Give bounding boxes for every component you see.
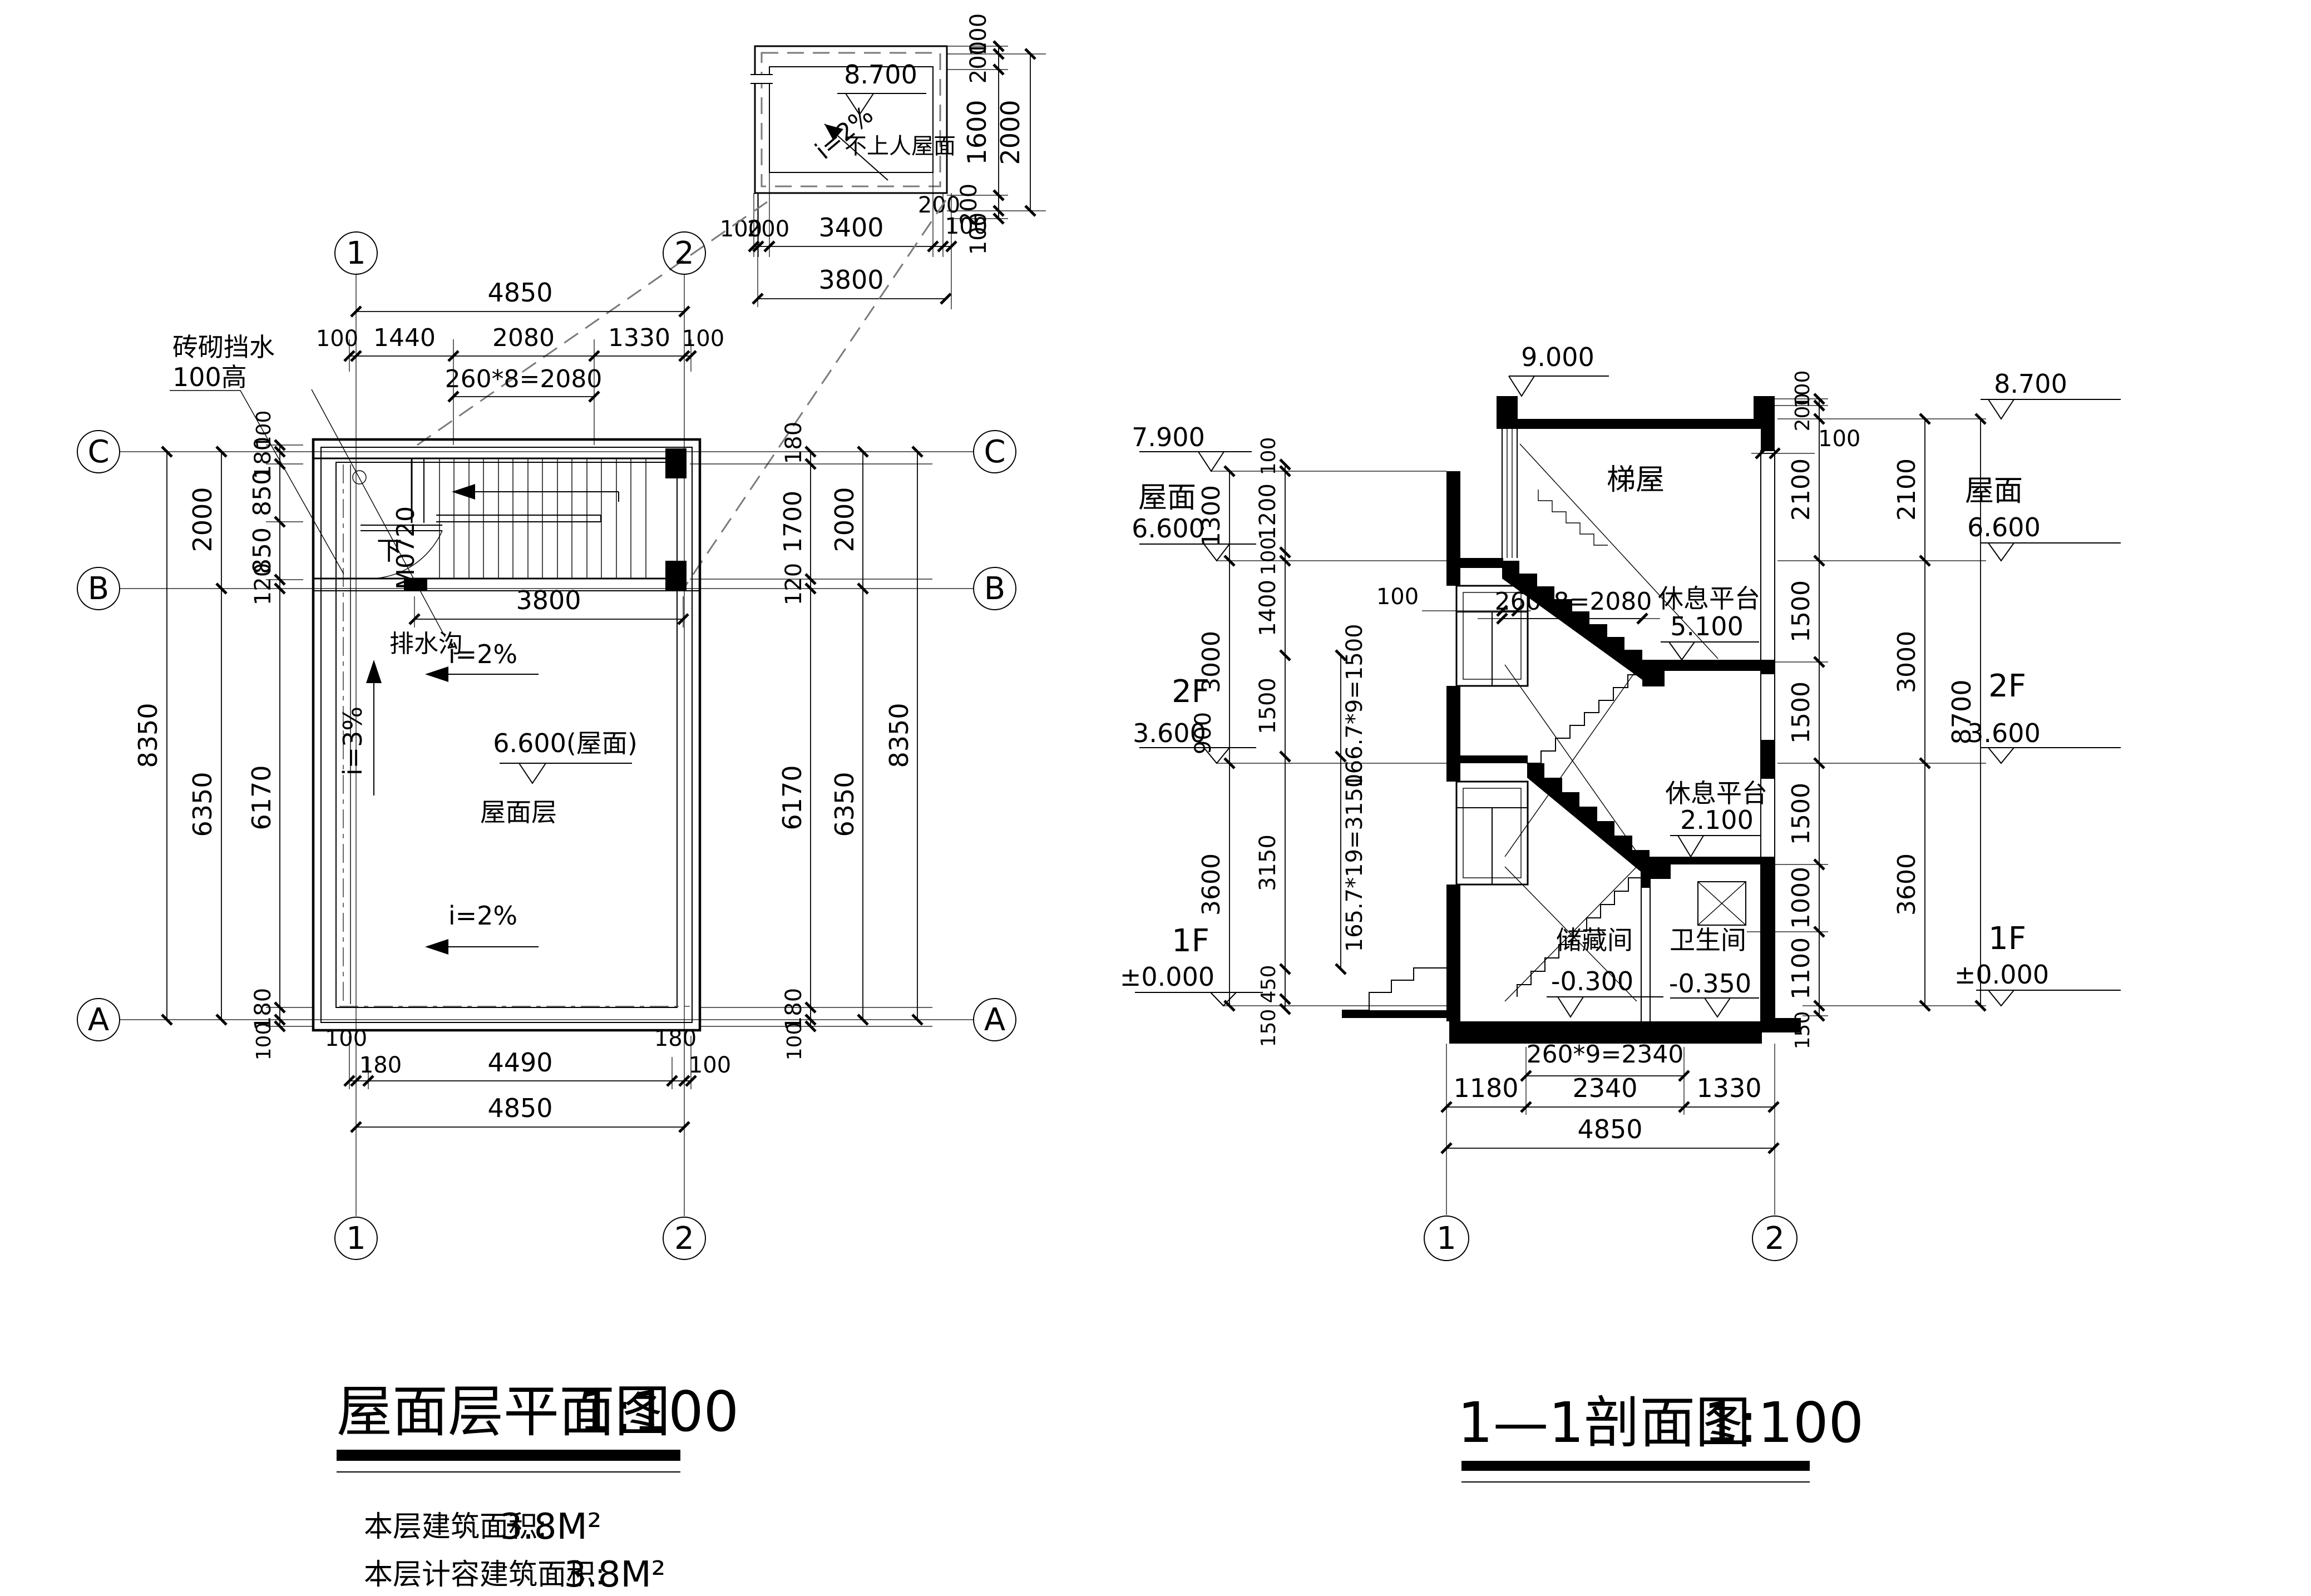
dim-label: 260*8=2080: [445, 365, 603, 393]
dim-label: 8350: [884, 703, 914, 768]
dim-label: 100: [253, 1022, 275, 1061]
dim-label: 8350: [133, 703, 163, 768]
dim-label: 100: [783, 1022, 806, 1061]
dim-label: 900: [1191, 712, 1216, 754]
plan-title-scale: 1:100: [579, 1379, 739, 1444]
dim-label: 1600: [962, 100, 992, 165]
dim-label: 260*9=2340: [1527, 1040, 1684, 1069]
dim-label: 180: [654, 1026, 697, 1051]
axis-label: C: [984, 434, 1005, 470]
dim-label: 100: [325, 1026, 367, 1051]
stair-arrow: [452, 484, 475, 500]
dim-label: 1330: [608, 324, 670, 352]
dim-label: 2100: [1787, 458, 1815, 521]
dim-label: 450: [1257, 965, 1280, 1004]
dim-label: 100: [966, 213, 991, 255]
room-label: 储藏间: [1556, 925, 1633, 955]
room-level: -0.300: [1551, 966, 1633, 996]
dim-label: 1180: [1453, 1073, 1518, 1103]
column: [665, 561, 687, 591]
dim-label: 180: [359, 1053, 402, 1078]
dim-label: 165.7*19=3150: [1342, 774, 1367, 952]
column: [665, 448, 687, 478]
axis-label: A: [984, 1002, 1005, 1038]
level-label: 6.600: [1967, 512, 2041, 542]
dim-label: 6170: [777, 765, 807, 830]
dim-label: 2080: [492, 324, 555, 352]
axis-label: 2: [674, 1221, 694, 1257]
dim-label: 3000: [1197, 631, 1226, 693]
axis-label: C: [87, 434, 109, 470]
landing-level: 5.100: [1670, 611, 1744, 641]
dim-label: 3800: [818, 265, 883, 295]
level-label: 8.700: [1994, 369, 2067, 399]
level-label: ±0.000: [1120, 962, 1214, 992]
dim-label: 150: [1791, 1011, 1814, 1050]
slope-label: i=2%: [448, 639, 517, 669]
axis-label: A: [88, 1002, 109, 1038]
dim-label: 6350: [187, 772, 218, 837]
axis-label: B: [88, 571, 109, 607]
level-label: ±0.000: [1954, 960, 2049, 990]
axis-label: 2: [674, 235, 694, 271]
dim-label: 4850: [487, 1093, 552, 1123]
stair-room-plan: 下 M0720: [312, 389, 700, 637]
dim-label: 2100: [1893, 458, 1921, 521]
dim-label: 3600: [1197, 853, 1226, 916]
entry-steps: [1342, 968, 1449, 1010]
dim-label: 166.7*9=1500: [1342, 624, 1367, 788]
parapet-note: 砖砌挡水: [172, 332, 275, 362]
section-view: 9.000 梯屋 100 100 260*8=2080 休息平台 5.100: [1120, 342, 2121, 1261]
dim-label: 1440: [373, 324, 436, 352]
dim-label: 1000: [1787, 867, 1815, 929]
landing-label: 休息平台: [1658, 584, 1760, 614]
dim-label: 120: [250, 563, 276, 605]
landing-level: 2.100: [1680, 805, 1754, 835]
dim-label: 200: [966, 41, 991, 83]
parapet-note: 100高: [172, 362, 247, 392]
axis-label: B: [984, 571, 1005, 607]
dim-label: 120: [781, 563, 807, 605]
roof-plan: 1 2 1 2 C B A C B A: [77, 232, 1016, 1259]
dim-label: 1400: [1255, 580, 1281, 636]
section-title-block: 1—1剖面图 1:100: [1458, 1390, 1864, 1482]
level-label: 屋面: [1138, 481, 1196, 515]
dim-label: 2000: [995, 100, 1025, 165]
axis-label: 1: [346, 235, 366, 271]
stair-flight-lower: [1527, 763, 1650, 879]
dim-label: 100: [1376, 584, 1419, 610]
dim-label: 3150: [1255, 834, 1281, 891]
dim-label: 3000: [1893, 631, 1921, 693]
dim-label: 100: [316, 326, 358, 352]
bath-window: [1698, 882, 1746, 925]
dim-label: 2000: [187, 487, 218, 552]
dim-label: 1300: [1197, 485, 1226, 547]
dim-label: 180: [781, 422, 807, 464]
drawing-sheet: 8.700 i=2% 不上人屋面 100 200 3400 200 100 38…: [0, 0, 2311, 1596]
cad-drawing: 8.700 i=2% 不上人屋面 100 200 3400 200 100 38…: [0, 0, 2311, 1596]
dim-label: 100: [689, 1053, 731, 1078]
dim-label: 150: [1257, 1009, 1280, 1047]
level-label: 6.600: [1132, 513, 1205, 543]
dim-label: 3800: [516, 585, 581, 615]
level-label: 1F: [1988, 921, 2026, 957]
dim-label: 1330: [1696, 1073, 1761, 1103]
dim-label: 100: [682, 326, 724, 352]
dim-label: 4490: [487, 1047, 552, 1078]
dim-label: 100: [1257, 437, 1280, 476]
dim-label: 1500: [1787, 783, 1815, 845]
dim-label: 200: [1791, 393, 1814, 432]
room-level: -0.350: [1669, 969, 1751, 999]
dim-label: 6350: [829, 772, 860, 837]
room-label: 梯屋: [1607, 463, 1665, 497]
axis-label: 1: [1436, 1221, 1456, 1257]
roof-level-label: 6.600(屋面): [493, 728, 638, 758]
axis-label: 2: [1765, 1221, 1785, 1257]
room-label: 卫生间: [1670, 925, 1746, 955]
dim-label: 6170: [246, 765, 276, 830]
dim-label: 3600: [1893, 853, 1921, 916]
detail-roof-note: 不上人屋面: [845, 134, 956, 159]
stair-treads: [440, 458, 646, 579]
dim-label: 1700: [779, 491, 807, 553]
dim-label: 4850: [1577, 1114, 1642, 1144]
detail-leader: [417, 202, 767, 445]
dim-label: 100: [1818, 426, 1860, 452]
landing-label: 休息平台: [1665, 778, 1767, 808]
area-note-value: 3.8M²: [500, 1506, 602, 1548]
slope-label: i=2%: [448, 901, 517, 931]
level-label: 9.000: [1521, 342, 1594, 372]
dim-label: 1500: [1787, 681, 1815, 744]
level-label: 2F: [1988, 668, 2026, 704]
dim-label: 100: [1257, 537, 1280, 576]
dim-label: 1200: [1255, 483, 1281, 540]
roof-layer-label: 屋面层: [480, 797, 557, 827]
dim-label: 200: [747, 216, 789, 242]
plan-title-block: 屋面层平面图 1:100 本层建筑面积: 3.8M² 本层计容建筑面积: 3.8…: [337, 1379, 739, 1595]
slope-label: i=3%: [338, 706, 368, 775]
dim-label: 2340: [1572, 1073, 1637, 1103]
axis-label: 1: [346, 1221, 366, 1257]
level-label: 7.900: [1132, 422, 1205, 452]
level-label: 屋面: [1965, 475, 2023, 508]
area-note-value: 3.8M²: [564, 1554, 666, 1595]
detail-leader: [684, 200, 946, 587]
dim-label: 1500: [1787, 580, 1815, 643]
dim-label: 1500: [1255, 678, 1281, 734]
level-label: 1F: [1172, 923, 1209, 959]
stair-flight-mid-elev: [1527, 662, 1642, 763]
window: [1456, 782, 1528, 885]
dim-label: 2000: [829, 487, 860, 552]
stair-flight-upper: [1502, 561, 1642, 680]
section-title-scale: 1:100: [1703, 1390, 1864, 1455]
dim-label: 850: [248, 470, 276, 516]
dim-label: 1100: [1787, 937, 1815, 1000]
detail-level: 8.700: [844, 60, 917, 90]
door-tag: M0720: [392, 506, 420, 590]
dim-label: 3400: [818, 213, 883, 243]
dim-label: 4850: [487, 278, 552, 308]
level-label: 3.600: [1967, 718, 2041, 748]
